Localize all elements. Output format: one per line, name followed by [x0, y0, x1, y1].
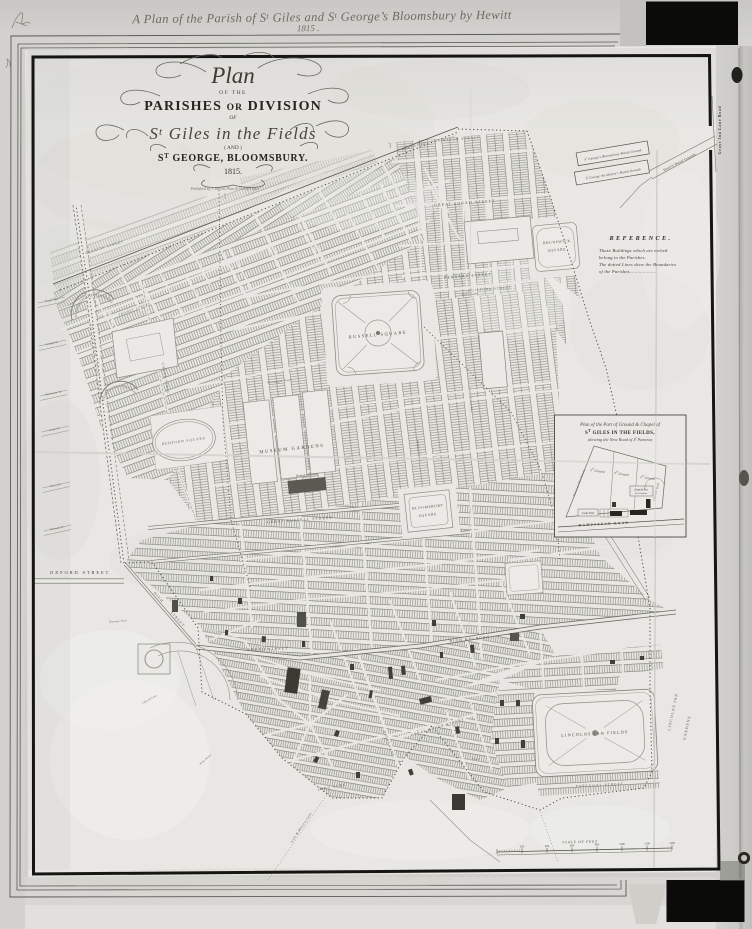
svg-text:Tea Gardens: Tea Gardens — [635, 492, 647, 495]
svg-text:SCALE OF FEET: SCALE OF FEET — [562, 840, 598, 845]
svg-text:of the Parishes...............: of the Parishes.................... — [599, 269, 657, 274]
svg-text:400: 400 — [545, 845, 550, 848]
svg-text:600: 600 — [570, 844, 575, 847]
svg-text:1000: 1000 — [619, 843, 625, 846]
svg-text:200: 200 — [520, 845, 525, 848]
svg-text:ST GILES IN THE FIELDS,: ST GILES IN THE FIELDS, — [585, 429, 655, 436]
svg-text:OXFORD STREET: OXFORD STREET — [50, 570, 110, 575]
svg-text:ST GEORGE, BLOOMSBURY.: ST GEORGE, BLOOMSBURY. — [158, 153, 308, 164]
svg-text:Plan: Plan — [210, 63, 254, 88]
svg-text:1815 .: 1815 . — [297, 23, 320, 33]
svg-text:800: 800 — [595, 844, 600, 847]
svg-text:Clare: Clare — [472, 758, 480, 762]
svg-text:1400: 1400 — [669, 842, 675, 845]
svg-text:Grays Inn Lane Road: Grays Inn Lane Road — [718, 105, 722, 154]
svg-text:Coals Yard: Coals Yard — [582, 512, 595, 515]
svg-text:The dotted Lines shew the Boun: The dotted Lines shew the Boundaries — [599, 262, 676, 267]
svg-text:REFERENCE.: REFERENCE. — [608, 235, 672, 242]
svg-text:Plan of the Part of Ground & C: Plan of the Part of Ground & Chapel of — [579, 423, 660, 428]
svg-text:shewing the New Road of St Pan: shewing the New Road of St Pancras — [588, 436, 653, 442]
svg-text:Those Buildings which are etc: Those Buildings which are etched — [599, 248, 668, 253]
svg-text:1815.: 1815. — [224, 167, 242, 176]
svg-text:( AND ): ( AND ) — [224, 144, 242, 151]
svg-text:belong to the Parishes.: belong to the Parishes. — [599, 255, 646, 260]
svg-text:1200: 1200 — [644, 843, 650, 846]
svg-text:OF THE: OF THE — [219, 90, 247, 96]
svg-text:St Giles in the Fields: St Giles in the Fields — [149, 124, 316, 143]
svg-text:OF: OF — [229, 115, 237, 121]
